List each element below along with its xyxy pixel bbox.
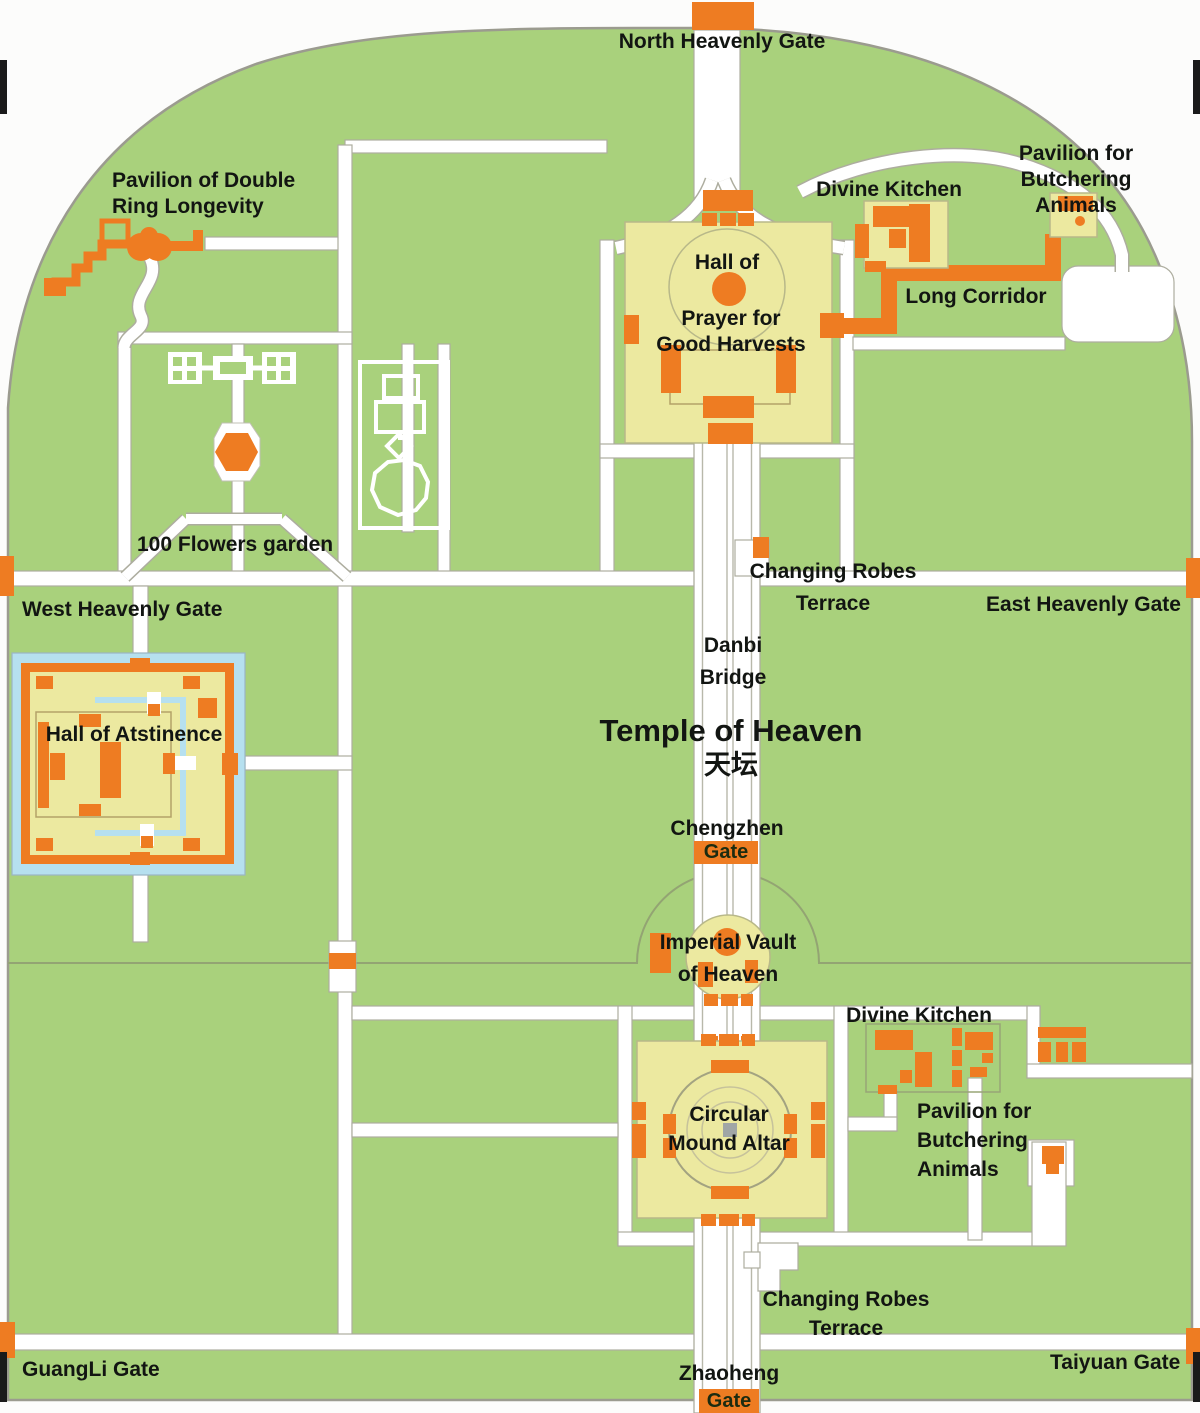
east-buildings-cluster [1038,1027,1086,1062]
map-title-chinese: 天坛 [704,752,758,778]
label-hall-of-prayer-1: Hall of [695,250,759,276]
label-pavilion-butchering-south: Pavilion for Butchering Animals [917,1097,1031,1184]
label-north-heavenly-gate: North Heavenly Gate [619,29,826,55]
label-danbi-bridge: Danbi Bridge [700,630,767,694]
west-heavenly-gate-marker [0,556,14,596]
label-taiyuan-gate: Taiyuan Gate [1050,1350,1180,1376]
chengzhen-gate-marker: Gate [694,841,758,864]
label-changing-robes-south: Changing Robes Terrace [763,1285,930,1343]
label-flowers-garden: 100 Flowers garden [137,532,333,558]
west-road-gate [329,941,356,992]
label-hall-of-prayer-2: Prayer for Good Harvests [656,306,805,358]
label-circular-mound: Circular Mound Altar [668,1100,790,1158]
label-hall-of-abstinence: Hall of Atstinence [46,722,223,748]
divine-kitchen-north-complex [855,201,948,272]
label-zhaoheng: Zhaoheng [679,1361,779,1387]
east-heavenly-gate-marker [1186,558,1200,598]
label-changing-robes-mid: Changing Robes Terrace [750,556,917,620]
label-imperial-vault: Imperial Vault of Heaven [660,927,797,991]
label-guangli-gate: GuangLi Gate [22,1357,160,1383]
label-divine-kitchen-south: Divine Kitchen [846,1003,992,1029]
label-pavilion-double-ring: Pavilion of Double Ring Longevity [112,168,295,220]
label-west-heavenly-gate: West Heavenly Gate [22,597,222,623]
label-chengzhen: Chengzhen [670,816,783,842]
temple-of-heaven-map: North Heavenly Gate Pavilion of Double R… [0,0,1200,1413]
label-pavilion-butchering-north: Pavilion for Butchering Animals [1014,141,1138,219]
label-divine-kitchen-north: Divine Kitchen [816,177,962,203]
label-long-corridor: Long Corridor [905,284,1046,310]
hall-of-abstinence-complex [12,653,245,875]
label-east-heavenly-gate: East Heavenly Gate [986,592,1181,618]
map-title: Temple of Heaven [599,714,862,748]
zhaoheng-gate-marker: Gate [699,1389,759,1413]
north-heavenly-gate-marker [692,2,754,30]
